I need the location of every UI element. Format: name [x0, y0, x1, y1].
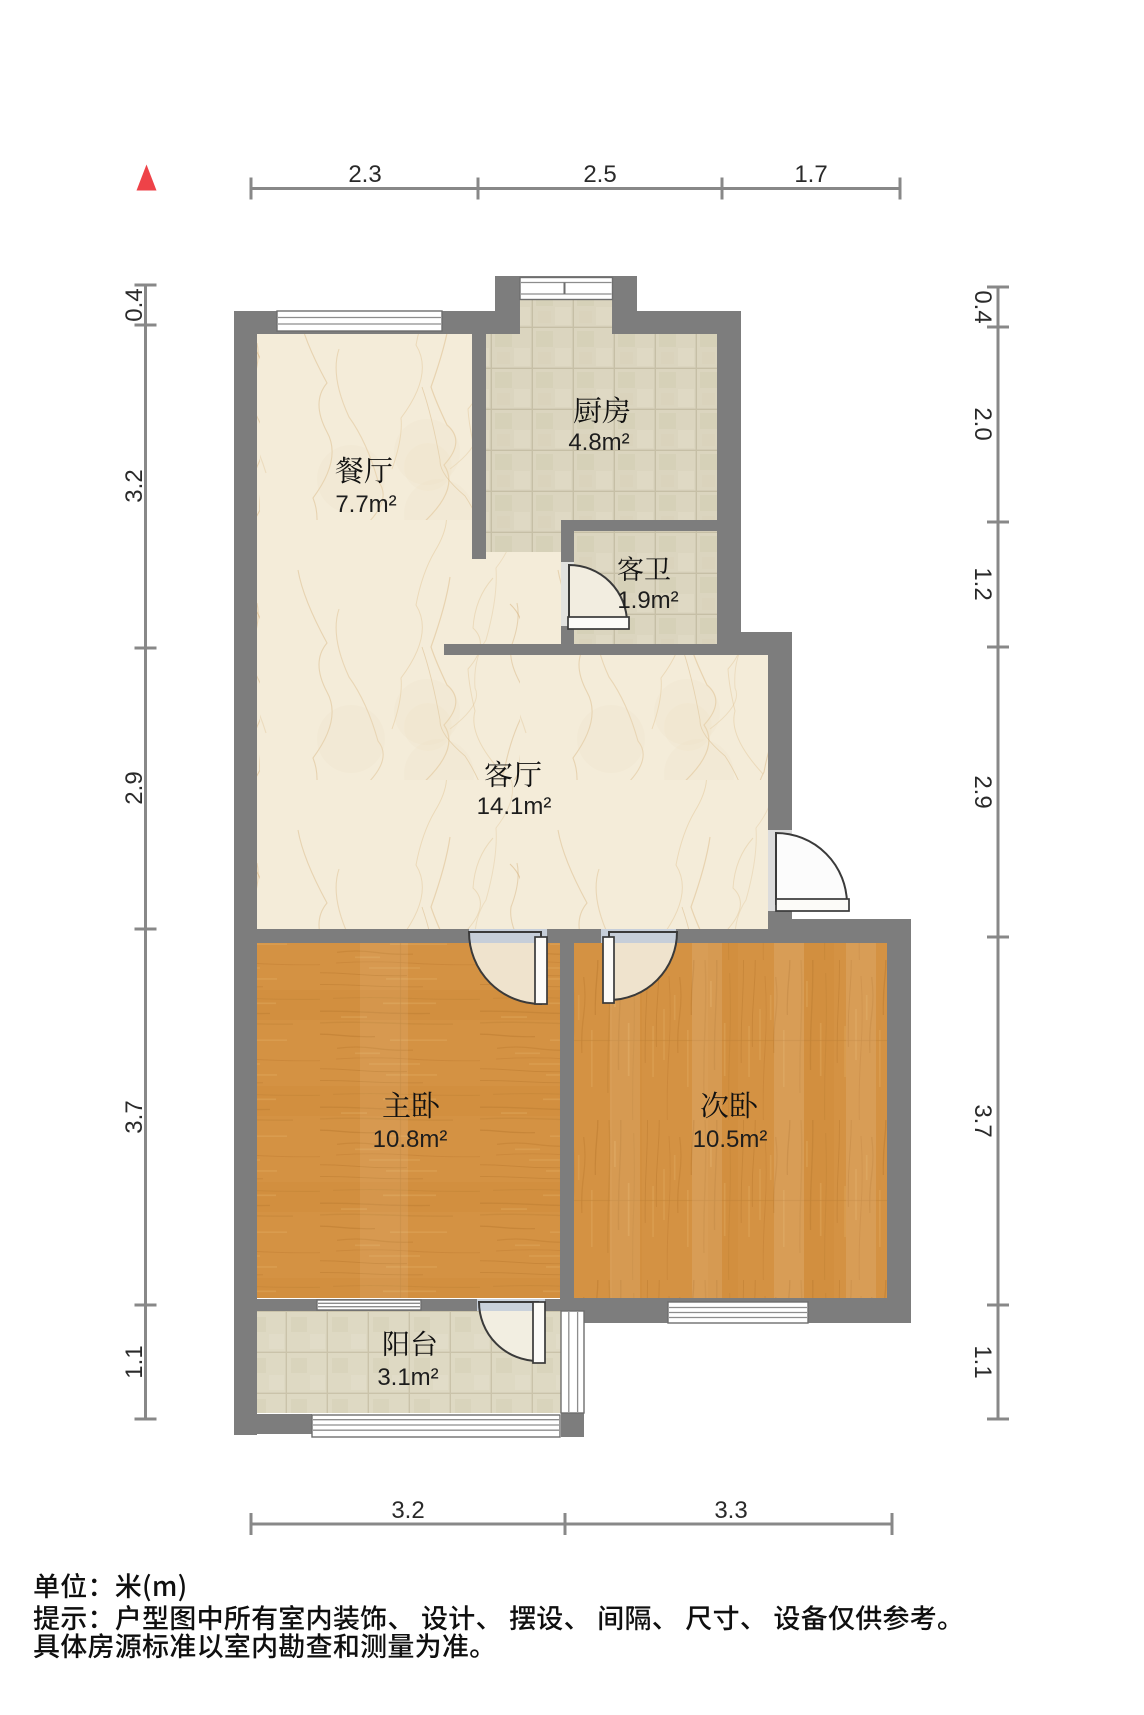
svg-text:3.7: 3.7	[969, 1104, 996, 1137]
svg-text:2.5: 2.5	[583, 161, 616, 188]
svg-text:1.9m²: 1.9m²	[617, 587, 678, 614]
svg-text:1.1: 1.1	[969, 1345, 996, 1378]
svg-text:3.2: 3.2	[391, 1497, 424, 1524]
svg-text:1.2: 1.2	[969, 567, 996, 600]
svg-text:1.1: 1.1	[121, 1345, 148, 1378]
svg-text:0.4: 0.4	[121, 288, 148, 321]
svg-text:3.3: 3.3	[714, 1497, 747, 1524]
svg-text:2.0: 2.0	[969, 407, 996, 440]
svg-text:4.8m²: 4.8m²	[568, 429, 629, 456]
svg-text:10.8m²: 10.8m²	[373, 1126, 448, 1153]
svg-text:3.1m²: 3.1m²	[377, 1364, 438, 1391]
svg-text:3.7: 3.7	[121, 1100, 148, 1133]
svg-text:2.9: 2.9	[121, 771, 148, 804]
svg-text:2.3: 2.3	[348, 161, 381, 188]
svg-text:0.4: 0.4	[969, 290, 996, 323]
svg-text:1.7: 1.7	[794, 161, 827, 188]
svg-text:3.2: 3.2	[121, 469, 148, 502]
svg-text:10.5m²: 10.5m²	[693, 1126, 768, 1153]
svg-text:2.9: 2.9	[969, 775, 996, 808]
svg-text:7.7m²: 7.7m²	[335, 491, 396, 518]
svg-text:14.1m²: 14.1m²	[477, 793, 552, 820]
